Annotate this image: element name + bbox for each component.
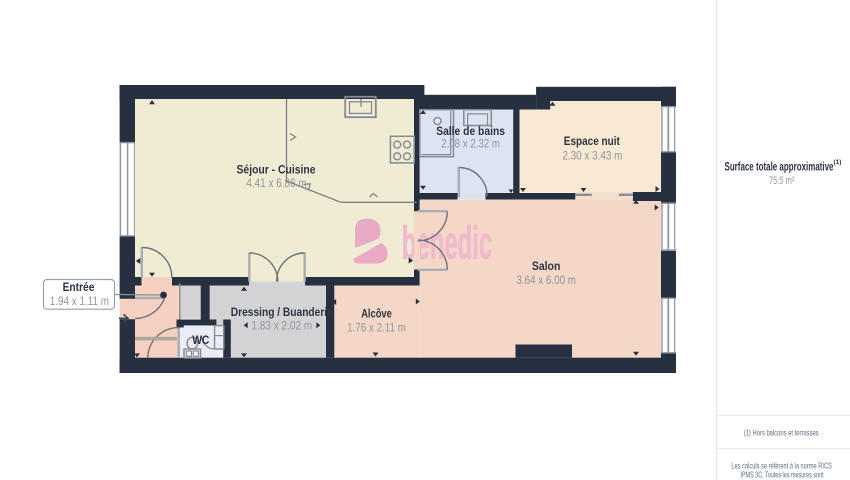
svg-text:1.76 x 2.11 m: 1.76 x 2.11 m	[347, 323, 406, 335]
svg-text:2.08 x 2.32 m: 2.08 x 2.32 m	[441, 139, 500, 151]
svg-text:3.64 x 6.00 m: 3.64 x 6.00 m	[516, 275, 576, 287]
svg-text:1.83 x 2.02 m: 1.83 x 2.02 m	[251, 321, 312, 333]
svg-text:Surface totale approximative: Surface totale approximative	[725, 161, 834, 173]
svg-text:1.94 x 1.11 m: 1.94 x 1.11 m	[50, 296, 109, 308]
svg-text:4.41 x 6.86 m: 4.41 x 6.86 m	[246, 178, 307, 190]
svg-text:IPMS 3C. Toutes les mesures so: IPMS 3C. Toutes les mesures sont	[740, 470, 824, 480]
svg-text:(1): (1)	[834, 159, 842, 166]
svg-text:Salle de bains: Salle de bains	[436, 124, 505, 138]
svg-text:Espace nuit: Espace nuit	[564, 134, 620, 148]
svg-text:2.30 x 3.43 m: 2.30 x 3.43 m	[562, 151, 622, 163]
svg-text:Séjour - Cuisine: Séjour - Cuisine	[237, 162, 316, 176]
svg-text:(1) Hors balcons et terrasses: (1) Hors balcons et terrasses	[744, 427, 819, 437]
svg-text:Dressing / Buanderie: Dressing / Buanderie	[231, 305, 333, 319]
svg-text:Entrée: Entrée	[63, 280, 95, 294]
svg-text:WC: WC	[192, 333, 209, 347]
svg-text:Salon: Salon	[532, 259, 561, 273]
svg-text:Alcôve: Alcôve	[361, 306, 392, 320]
svg-text:75.5 m²: 75.5 m²	[769, 175, 795, 187]
